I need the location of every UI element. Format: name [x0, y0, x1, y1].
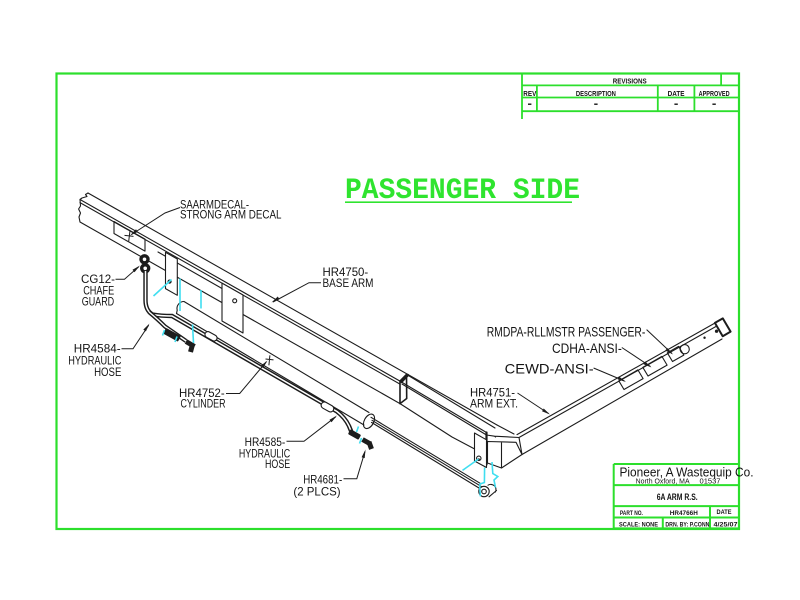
svg-text:BASE ARM: BASE ARM [323, 276, 374, 290]
svg-text:Pioneer, A Wastequip Co.: Pioneer, A Wastequip Co. [620, 466, 754, 480]
svg-text:CEWD-ANSI-: CEWD-ANSI- [505, 361, 594, 377]
svg-text:RMDPA-RLLMSTR PASSENGER-: RMDPA-RLLMSTR PASSENGER- [487, 323, 646, 339]
svg-text:PART NO.: PART NO. [620, 510, 643, 517]
svg-text:STRONG ARM DECAL: STRONG ARM DECAL [180, 207, 282, 221]
svg-text:REVISIONS: REVISIONS [613, 77, 647, 86]
svg-text:DRN. BY: P.CONN: DRN. BY: P.CONN [665, 522, 709, 529]
svg-text:HOSE: HOSE [94, 365, 121, 379]
svg-text:6A ARM R.S.: 6A ARM R.S. [657, 492, 698, 502]
svg-text:(2 PLCS): (2 PLCS) [293, 485, 340, 499]
svg-text:HR4766H: HR4766H [670, 510, 698, 517]
svg-text:CDHA-ANSI-: CDHA-ANSI- [552, 340, 622, 356]
svg-text:4/25/07: 4/25/07 [714, 522, 738, 529]
svg-text:SCALE: NONE: SCALE: NONE [619, 522, 659, 529]
svg-text:DATE: DATE [717, 509, 733, 516]
svg-text:HOSE: HOSE [265, 457, 290, 471]
svg-text:North Oxford, MA: North Oxford, MA [636, 479, 690, 486]
svg-text:DESCRIPTION: DESCRIPTION [576, 89, 616, 98]
svg-text:APPROVED: APPROVED [699, 89, 730, 98]
svg-text:01537: 01537 [700, 479, 721, 486]
svg-text:CYLINDER: CYLINDER [181, 397, 226, 411]
svg-text:GUARD: GUARD [82, 295, 115, 309]
svg-text:ARM EXT.: ARM EXT. [470, 397, 518, 411]
svg-text:DATE: DATE [668, 89, 685, 98]
svg-text:REV: REV [523, 89, 536, 98]
